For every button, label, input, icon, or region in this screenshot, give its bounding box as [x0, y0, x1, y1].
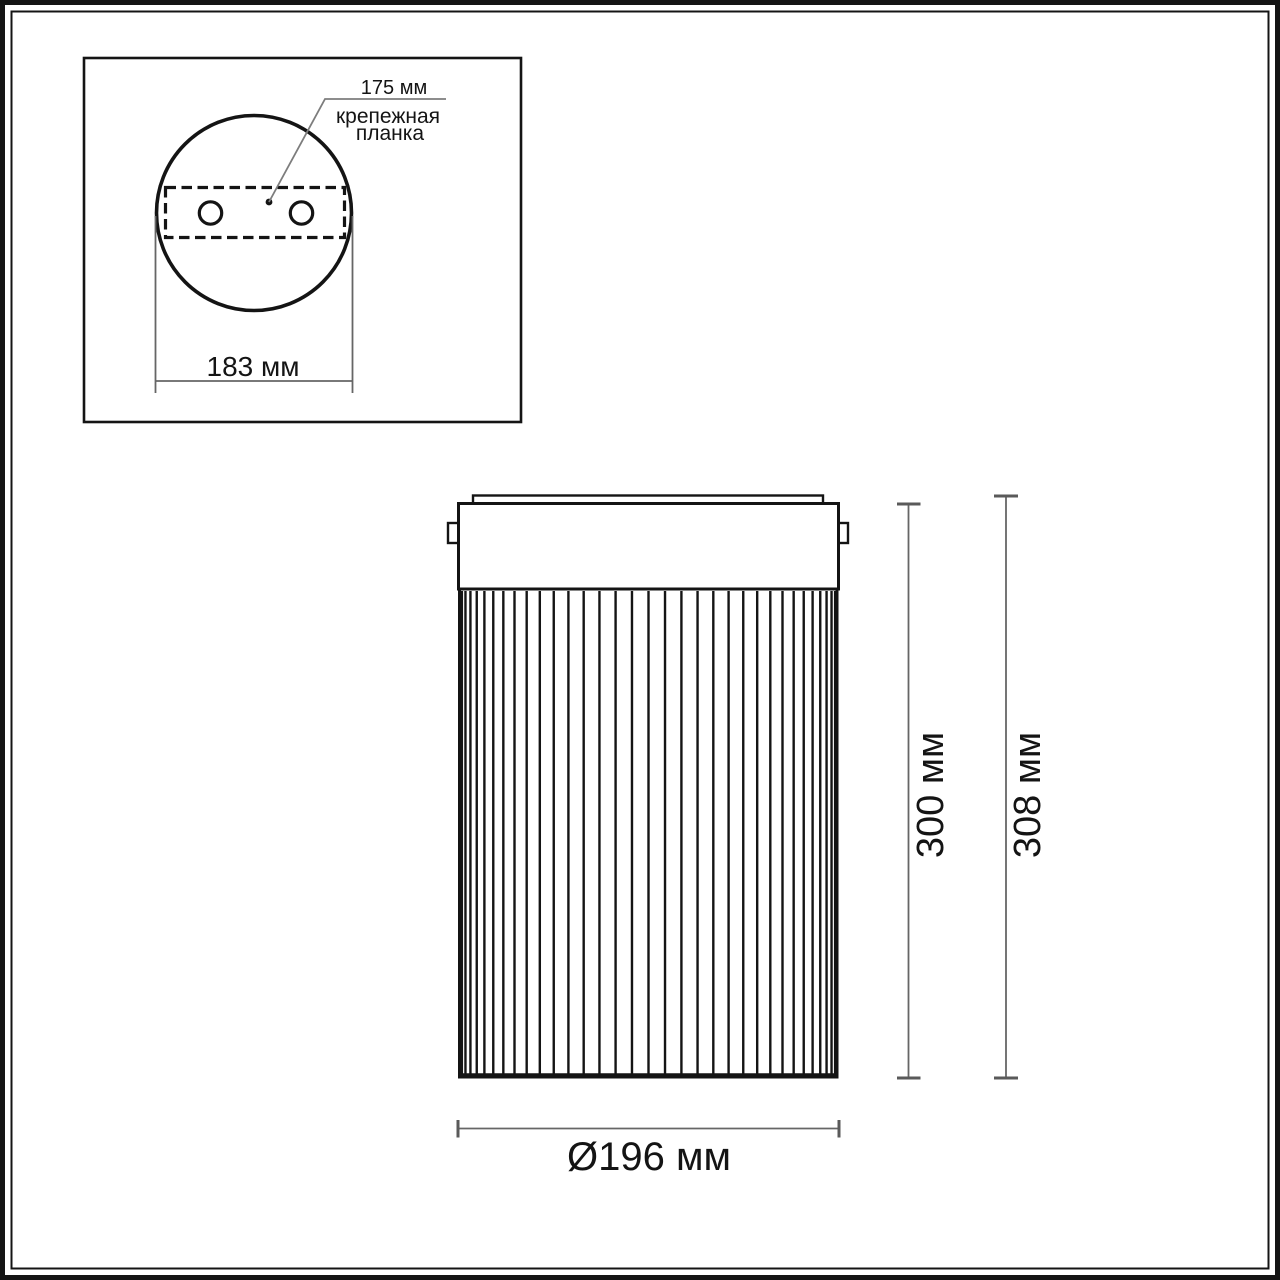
mounting-hole-left [199, 202, 221, 224]
mounting-plate-label-line2: планка [356, 122, 425, 145]
cap [459, 504, 839, 590]
base-width-label: 183 мм [207, 351, 300, 382]
mounting-hole-right [290, 202, 312, 224]
mounting-plate-dashed-outline [166, 188, 345, 238]
front-view [448, 496, 848, 1078]
canopy-circle [157, 116, 352, 311]
top-view-inset-box [84, 58, 521, 422]
spec-sheet-page: 175 мм крепежная планка 183 мм [0, 0, 1280, 1280]
body-height-label: 300 мм [910, 732, 952, 858]
overall-height-label: 308 мм [1007, 732, 1049, 858]
technical-drawing: 175 мм крепежная планка 183 мм [0, 0, 1280, 1280]
top-view-inset: 175 мм крепежная планка 183 мм [84, 58, 521, 422]
hole-spacing-label: 175 мм [361, 77, 427, 99]
diameter-label: Ø196 мм [567, 1135, 731, 1179]
